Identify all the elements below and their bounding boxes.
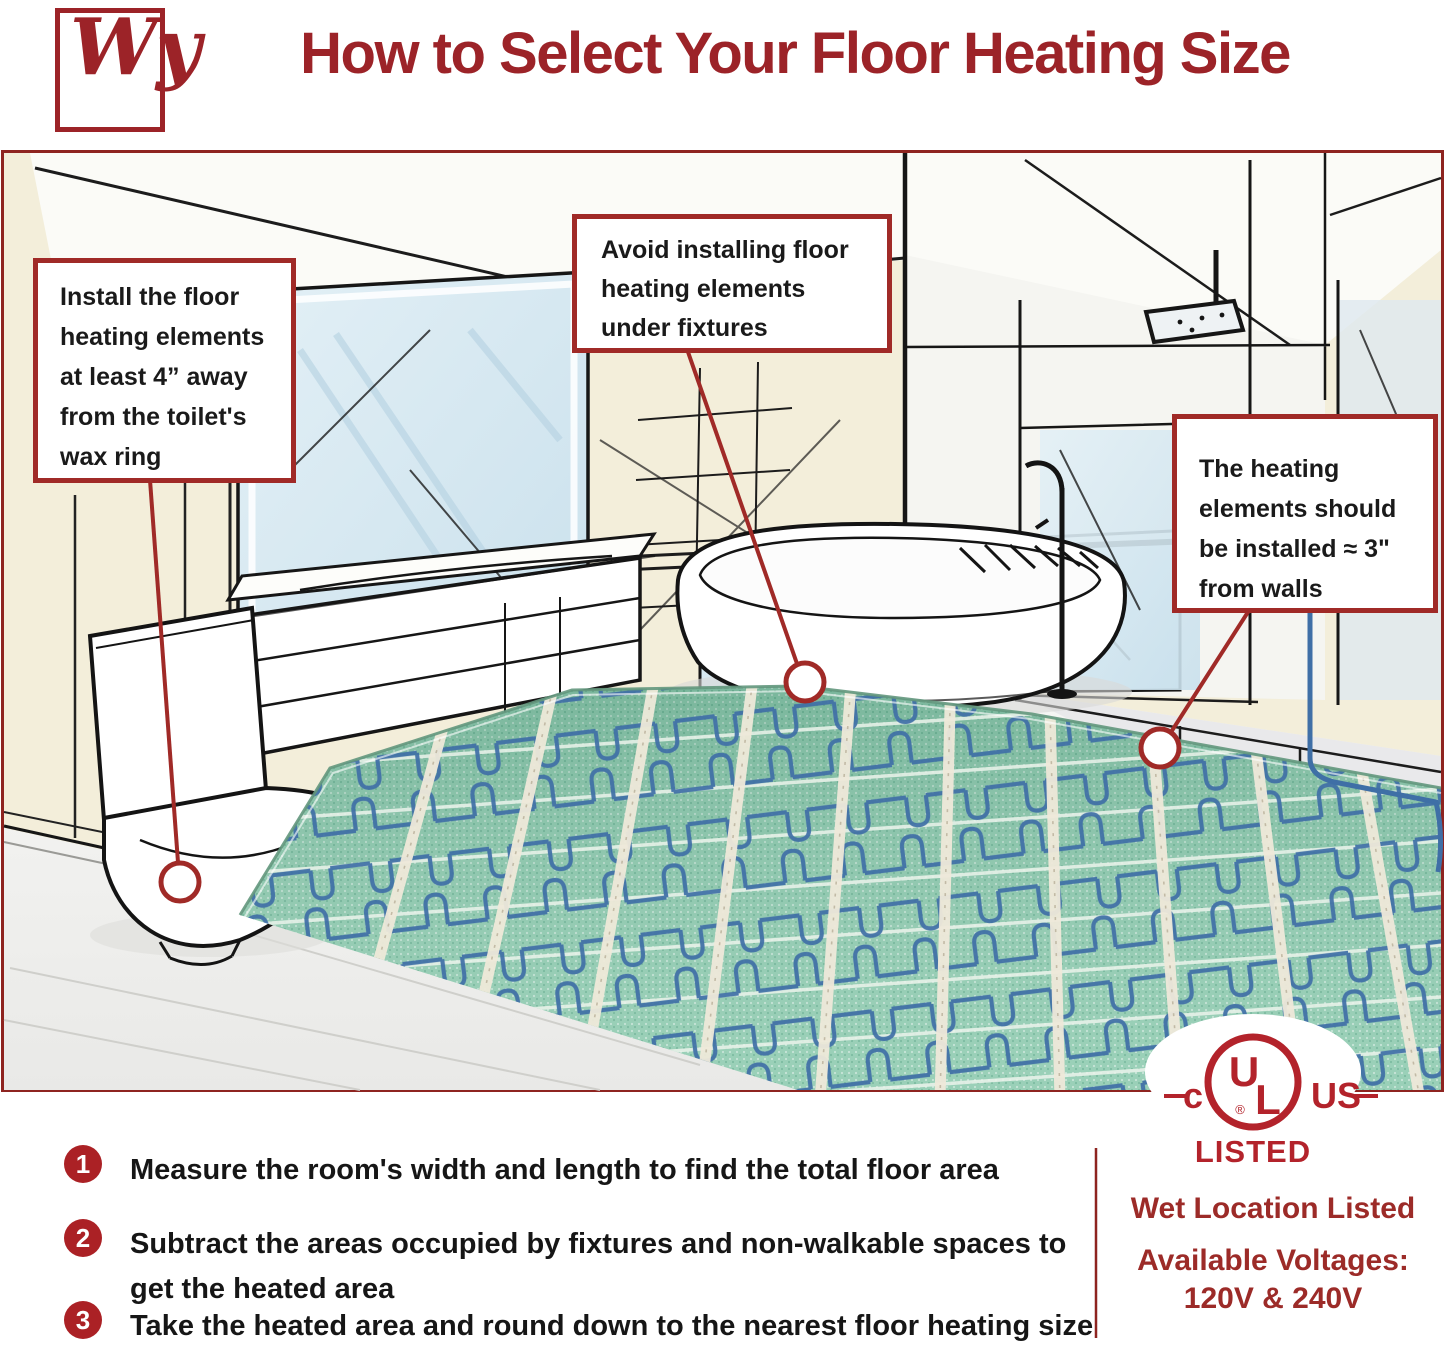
ul-c-label: c <box>1183 1075 1203 1116</box>
brand-logo: Wy <box>55 8 165 132</box>
step-1-badge: 1 <box>64 1145 102 1183</box>
step-2: 2 Subtract the areas occupied by fixture… <box>64 1222 1074 1312</box>
callout-wall-clearance: The heating elements should be installed… <box>1172 414 1438 613</box>
marker-toilet <box>161 863 199 901</box>
brand-logo-text: Wy <box>70 9 201 87</box>
step-3: 3 Take the heated area and round down to… <box>64 1304 1144 1348</box>
infographic: U L ® c US LISTED Wy How to Select Your … <box>0 0 1445 1348</box>
step-1: 1 Measure the room's width and length to… <box>64 1148 1064 1193</box>
ul-letter-l: L <box>1255 1076 1281 1123</box>
marker-tub <box>786 663 824 701</box>
voltages-label: Available Voltages: <box>1108 1244 1438 1278</box>
step-2-text: Subtract the areas occupied by fixtures … <box>130 1222 1074 1312</box>
callout-avoid-fixtures: Avoid installing floor heating elements … <box>572 214 892 353</box>
voltages-value: 120V & 240V <box>1108 1282 1438 1316</box>
marker-shower <box>1141 729 1179 767</box>
page-title: How to Select Your Floor Heating Size <box>205 20 1385 87</box>
wet-location-label: Wet Location Listed <box>1108 1192 1438 1226</box>
callout-toilet-clearance: Install the floor heating elements at le… <box>33 258 296 483</box>
step-3-badge: 3 <box>64 1301 102 1339</box>
step-1-text: Measure the room's width and length to f… <box>130 1148 999 1193</box>
step-3-text: Take the heated area and round down to t… <box>130 1304 1093 1348</box>
certification-info: Wet Location Listed Available Voltages: … <box>1108 1192 1438 1316</box>
ul-listed-label: LISTED <box>1195 1134 1311 1169</box>
ul-registered-symbol: ® <box>1235 1102 1245 1117</box>
step-2-badge: 2 <box>64 1219 102 1257</box>
bathroom-scene-illustration: U L ® c US LISTED <box>0 0 1445 1348</box>
ul-us-label: US <box>1311 1075 1361 1116</box>
